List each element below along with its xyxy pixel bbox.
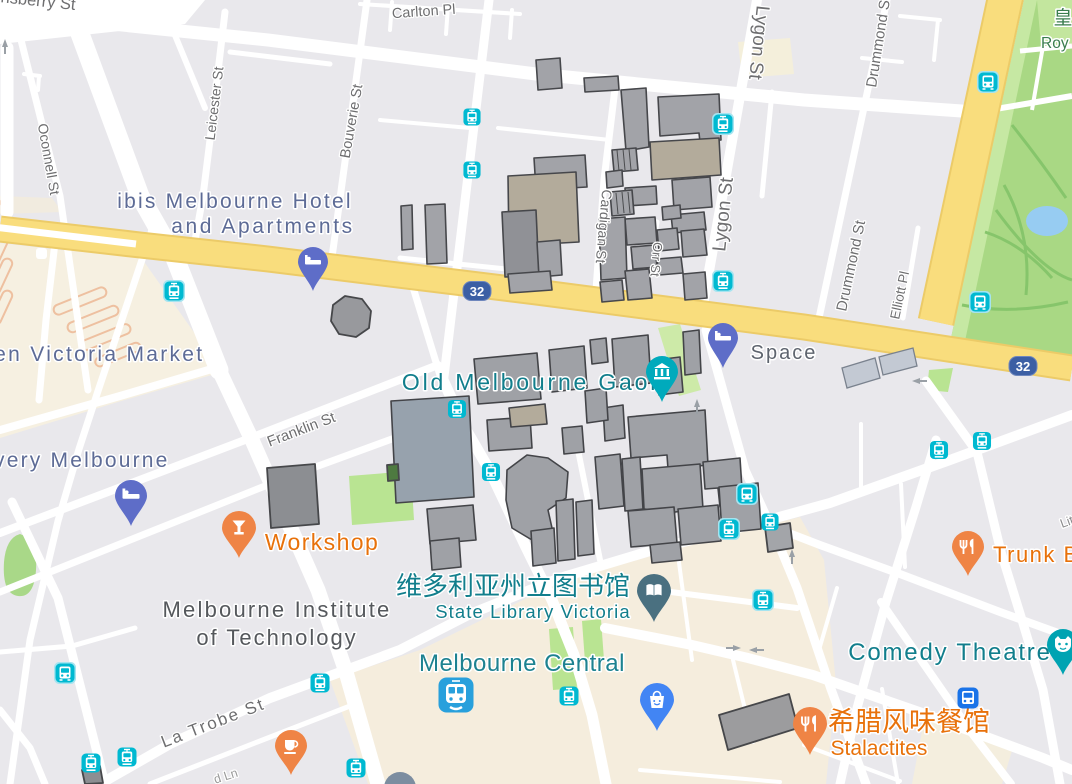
svg-text:Space: Space (751, 342, 818, 364)
svg-text:Comedy Theatre: Comedy Theatre (848, 639, 1052, 666)
svg-text:Melbourne Institute: Melbourne Institute (163, 597, 392, 622)
svg-text:Queen Victoria Market: Queen Victoria Market (0, 343, 204, 366)
svg-text:希腊风味餐馆: 希腊风味餐馆 (828, 707, 990, 737)
svg-text:of Technology: of Technology (196, 625, 357, 650)
svg-text:Trunk Ba: Trunk Ba (993, 542, 1072, 567)
svg-text:Orr St: Orr St (647, 241, 665, 277)
svg-text:Roy: Roy (1041, 35, 1069, 52)
svg-text:State Library Victoria: State Library Victoria (435, 601, 631, 622)
svg-text:Old Melbourne Gaol: Old Melbourne Gaol (402, 369, 658, 395)
svg-text:Workshop: Workshop (265, 529, 379, 555)
svg-text:ibis Melbourne Hotel: ibis Melbourne Hotel (117, 190, 352, 213)
svg-text:维多利亚州立图书馆: 维多利亚州立图书馆 (396, 571, 630, 601)
svg-text:Melbourne Central: Melbourne Central (419, 650, 625, 677)
svg-text:Stalactites: Stalactites (831, 737, 928, 760)
svg-text:Discovery Melbourne: Discovery Melbourne (0, 449, 170, 472)
svg-text:皇: 皇 (1053, 7, 1072, 29)
svg-text:and Apartments: and Apartments (171, 215, 355, 238)
svg-text:32: 32 (470, 284, 484, 299)
svg-text:32: 32 (1016, 359, 1030, 374)
